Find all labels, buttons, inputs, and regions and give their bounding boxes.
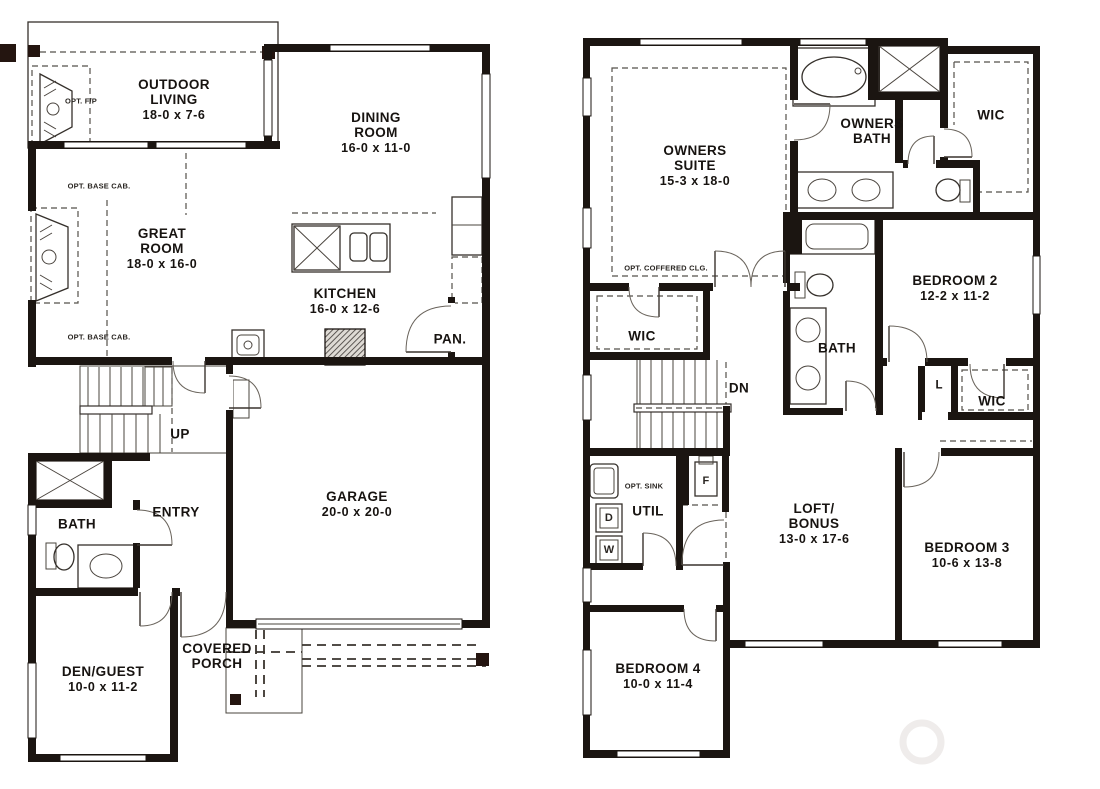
shower-icon: [36, 461, 104, 500]
room-label-owners-suite: OWNERS SUITE 15-3 x 18-0: [647, 144, 743, 188]
opt-sink-label: OPT. SINK: [625, 482, 663, 491]
room-label-den-guest: DEN/GUEST 10-0 x 11-2: [62, 665, 144, 695]
suite-double-door: [715, 251, 751, 287]
room-label-owners-bath: OWNERS BATH: [823, 117, 921, 147]
floor-plan-sheet: OUTDOOR LIVING 18-0 x 7-6 DINING ROOM 16…: [0, 0, 1100, 789]
room-label-entry: ENTRY: [152, 506, 199, 521]
room-label-pantry: PAN.: [434, 333, 467, 348]
hall-bath-door: [846, 381, 876, 411]
porch-post-icon: [28, 45, 40, 57]
stairs-down-label: DN: [729, 382, 749, 397]
room-label-wic: WIC: [977, 109, 1004, 124]
window-icon: [583, 78, 591, 116]
window-icon: [800, 39, 866, 45]
opt-fireplace-label: OPT. F/P: [65, 97, 97, 106]
window-icon: [64, 142, 148, 148]
room-label-wic-bed2: WIC: [978, 395, 1005, 410]
utility-sink-icon: [232, 330, 264, 360]
room-label-outdoor-living: OUTDOOR LIVING 18-0 x 7-6: [116, 78, 232, 122]
front-door: [181, 592, 226, 637]
suite-double-door: [751, 251, 785, 287]
sink-icon: [350, 233, 367, 261]
furnace-label: F: [703, 475, 710, 487]
linen-label: L: [935, 380, 942, 393]
bedroom4-door: [684, 609, 716, 641]
window-icon: [640, 39, 742, 45]
window-icon: [745, 641, 823, 647]
room-label-util: UTIL: [632, 505, 664, 520]
bedroom3-door: [904, 452, 939, 487]
porch-post-icon: [476, 653, 489, 666]
media-niche-icon: [31, 208, 78, 303]
wic-door: [944, 129, 972, 157]
room-label-loft-bonus: LOFT/ BONUS 13-0 x 17-6: [779, 502, 849, 546]
bedroom2-door: [889, 326, 927, 362]
covered-porch-outline: [226, 628, 489, 713]
window-icon: [156, 142, 246, 148]
staircase-down: [634, 360, 731, 448]
stair-rail: [80, 406, 152, 414]
toilet-icon: [46, 543, 74, 570]
window-icon: [60, 755, 146, 761]
washer-label: W: [604, 544, 615, 556]
den-door: [140, 592, 172, 626]
window-icon: [28, 663, 36, 738]
laundry-sink-icon: [590, 464, 618, 498]
water-heater-icon: [233, 380, 249, 418]
window-icon: [617, 751, 700, 757]
shower-icon: [879, 46, 940, 92]
room-label-bath: BATH: [58, 518, 96, 533]
room-label-wic-left: WIC: [628, 330, 655, 345]
window-icon: [583, 650, 591, 715]
staircase-up: [80, 366, 228, 453]
edge-post-icon: [0, 44, 16, 62]
kitchen-island-icon: [292, 224, 390, 272]
dryer-label: D: [605, 512, 613, 524]
first-floor-doors: [137, 306, 451, 637]
window-icon: [938, 641, 1002, 647]
room-label-great-room: GREAT ROOM 18-0 x 16-0: [119, 227, 205, 271]
porch-post-icon: [230, 694, 241, 705]
window-icon: [583, 208, 591, 248]
window-icon: [330, 45, 430, 51]
garage-door: [256, 619, 462, 629]
stairs-up-label: UP: [170, 428, 190, 443]
refrigerator-cabinet-icon: [452, 197, 482, 303]
room-label-covered-porch: COVERED PORCH: [171, 642, 263, 672]
room-label-bath2: BATH: [818, 342, 856, 357]
opt-base-cab-label: OPT. BASE CAB.: [68, 333, 131, 342]
room-label-dining: DINING ROOM 16-0 x 11-0: [328, 111, 424, 155]
room-label-garage: GARAGE 20-0 x 20-0: [322, 490, 393, 520]
window-icon: [1033, 256, 1040, 314]
garage-service-door: [229, 376, 261, 408]
room-label-bedroom4: BEDROOM 4 10-0 x 11-4: [615, 662, 700, 692]
bathtub-icon: [790, 218, 875, 254]
util-door: [643, 533, 676, 566]
window-icon: [583, 375, 591, 420]
toilet-icon: [795, 272, 833, 298]
opt-coffered-clg-label: OPT. COFFERED CLG.: [624, 264, 708, 273]
wic-shelf-dashed: [954, 62, 1028, 192]
room-label-bedroom3: BEDROOM 3 10-6 x 13-8: [924, 541, 1009, 571]
room-label-kitchen: KITCHEN 16-0 x 12-6: [310, 287, 381, 317]
window-icon: [264, 60, 272, 136]
bathtub-icon: [793, 48, 875, 106]
opt-base-cab-label: OPT. BASE CAB.: [68, 182, 131, 191]
loft-opening-door: [682, 520, 724, 565]
fireplace-icon: [32, 66, 90, 148]
window-icon: [583, 568, 591, 602]
double-vanity-icon: [795, 172, 893, 208]
wic-left-door: [629, 287, 659, 317]
window-icon: [28, 505, 36, 535]
closet-shelves: [145, 367, 172, 406]
watermark-circle: [903, 723, 941, 761]
vanity-sink-icon: [78, 545, 138, 588]
window-icon: [482, 74, 490, 178]
toilet-icon: [936, 179, 970, 202]
sink-icon: [370, 233, 387, 261]
room-label-bedroom2: BEDROOM 2 12-2 x 11-2: [912, 274, 997, 304]
